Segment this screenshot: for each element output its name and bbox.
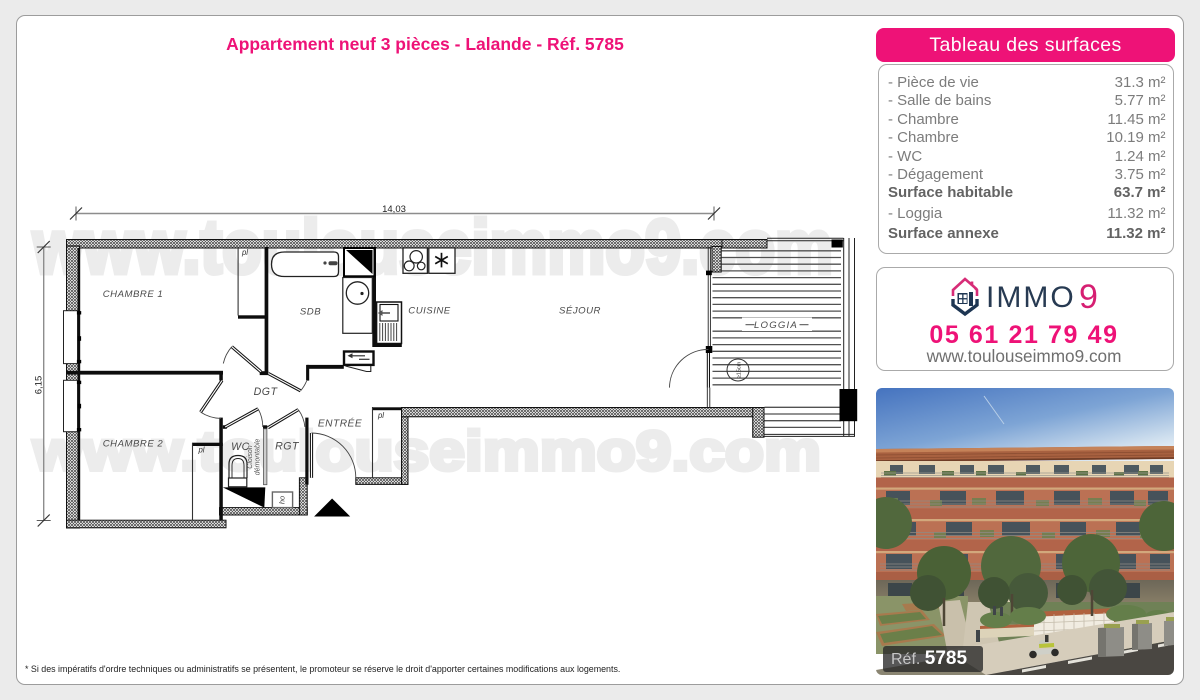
svg-text:LOGGIA: LOGGIA [754, 320, 798, 331]
svg-text:ho: ho [277, 496, 286, 504]
svg-text:pl: pl [241, 248, 248, 257]
svg-text:pl: pl [377, 411, 384, 420]
svg-text:démontable: démontable [255, 439, 262, 476]
svg-text:SDB: SDB [300, 307, 321, 318]
svg-text:≥15cm: ≥15cm [737, 361, 743, 378]
svg-text:ENTRÉE: ENTRÉE [318, 417, 362, 430]
svg-text:Cloison: Cloison [247, 445, 254, 468]
svg-text:pl: pl [197, 446, 204, 455]
svg-text:CHAMBRE 1: CHAMBRE 1 [103, 289, 163, 300]
svg-text:CHAMBRE 2: CHAMBRE 2 [103, 439, 164, 450]
svg-text:SÉJOUR: SÉJOUR [559, 306, 601, 317]
svg-text:RGT: RGT [275, 441, 300, 453]
svg-text:CUISINE: CUISINE [408, 306, 451, 317]
svg-text:6,15: 6,15 [34, 376, 45, 395]
svg-text:DGT: DGT [254, 386, 279, 398]
svg-text:www.toulouseimmo9.com: www.toulouseimmo9.com [32, 419, 821, 482]
svg-text:IMMO: IMMO [986, 281, 1076, 314]
svg-text:14,03: 14,03 [382, 204, 406, 215]
svg-text:9: 9 [1079, 278, 1098, 316]
